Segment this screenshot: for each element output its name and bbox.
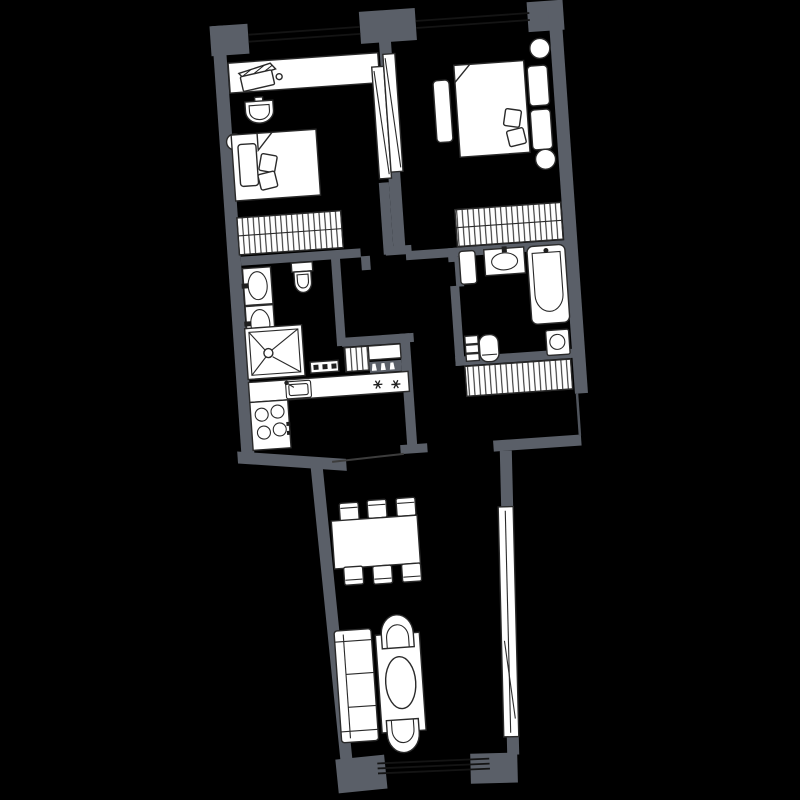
walk-in-shower: [245, 325, 305, 380]
console-table: [368, 344, 401, 360]
foot-bench: [433, 80, 453, 143]
sofa: [334, 629, 379, 743]
shelf-strip: [310, 360, 339, 373]
washing-machine: [546, 329, 571, 356]
toilet-right: [479, 334, 500, 362]
pier-top-middle: [359, 8, 417, 44]
living-room-wall-right-lower: [507, 735, 519, 755]
bathtub: [527, 244, 570, 324]
door-leaf: [459, 250, 477, 284]
wardrobe-left: [237, 211, 343, 255]
wall-corridor-cap: [400, 443, 428, 454]
chair: [344, 566, 364, 585]
vanity-sink-right: [484, 245, 526, 276]
cushion: [259, 153, 278, 173]
shower-drain: [264, 348, 274, 358]
floor-plan-canvas: [0, 0, 800, 800]
cushion: [506, 127, 526, 147]
chair: [401, 563, 421, 582]
hanger-closet: [465, 359, 573, 396]
knob: [276, 73, 282, 79]
dining-table: [331, 515, 420, 569]
chair: [396, 497, 416, 516]
living-room-wall-right-upper: [500, 451, 513, 509]
cushion: [258, 171, 278, 191]
stub-bottom-right: [470, 753, 518, 784]
wardrobe-right: [455, 202, 563, 246]
dining-group: [330, 497, 422, 587]
pillow: [238, 143, 259, 186]
chair: [339, 502, 359, 521]
chair: [367, 499, 387, 518]
door-jamb-stub: [361, 256, 371, 271]
pillow: [527, 65, 550, 106]
nightstand: [529, 38, 550, 59]
nightstand: [535, 149, 556, 170]
vanity-sink-1: [240, 267, 273, 306]
pier-top-left: [209, 24, 249, 57]
bed-left: [231, 129, 320, 201]
shoe-rack: [369, 360, 402, 373]
duct-shaft: [344, 346, 370, 372]
chair: [373, 565, 393, 584]
floor-plan: [0, 0, 800, 800]
pillow: [530, 109, 553, 150]
shelf-stack: [465, 335, 480, 361]
cushion: [503, 108, 521, 127]
